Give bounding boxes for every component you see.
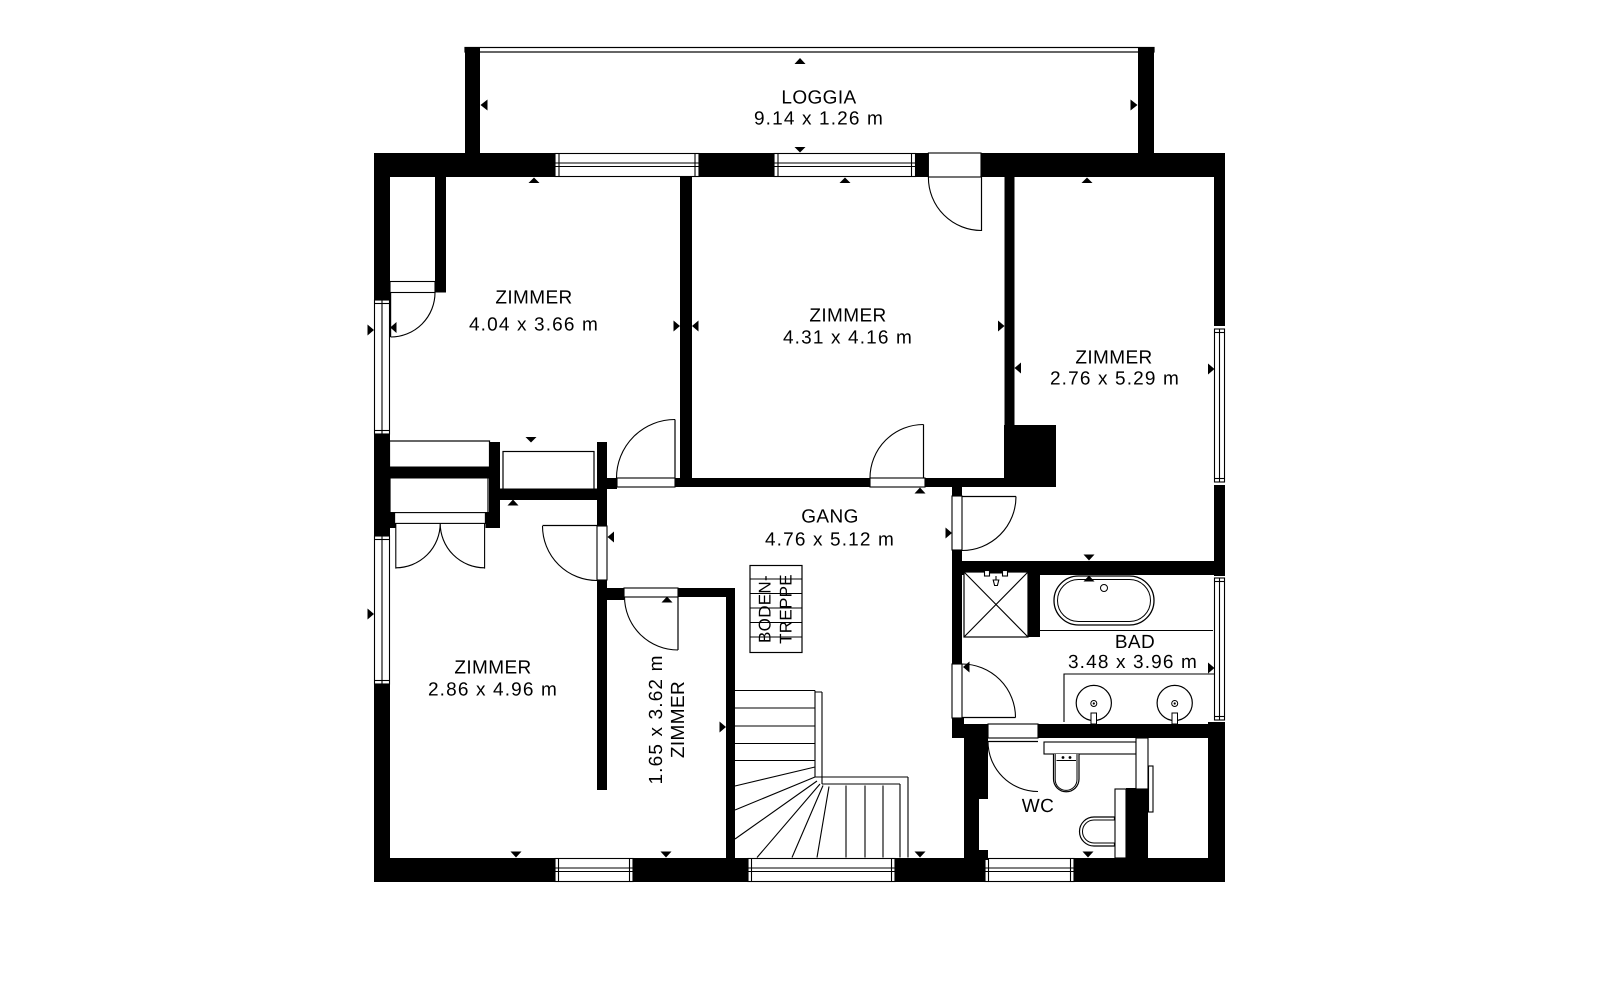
svg-text:GANG: GANG — [801, 507, 859, 528]
svg-text:4.31 x 4.16 m: 4.31 x 4.16 m — [783, 328, 913, 349]
svg-text:WC: WC — [1022, 796, 1054, 817]
svg-text:LOGGIA: LOGGIA — [781, 88, 856, 109]
svg-text:4.04 x 3.66 m: 4.04 x 3.66 m — [469, 315, 599, 336]
svg-text:2.76 x 5.29 m: 2.76 x 5.29 m — [1050, 369, 1180, 390]
svg-text:ZIMMER: ZIMMER — [454, 658, 531, 679]
svg-text:ZIMMER: ZIMMER — [495, 288, 572, 309]
svg-text:3.48 x 3.96 m: 3.48 x 3.96 m — [1068, 652, 1198, 673]
svg-text:ZIMMER: ZIMMER — [1075, 348, 1152, 369]
svg-text:9.14 x 1.26 m: 9.14 x 1.26 m — [754, 109, 884, 130]
svg-text:2.86 x 4.96 m: 2.86 x 4.96 m — [428, 680, 558, 701]
svg-text:BAD: BAD — [1115, 632, 1155, 653]
svg-text:ZIMMER: ZIMMER — [809, 306, 886, 327]
svg-text:4.76 x 5.12 m: 4.76 x 5.12 m — [765, 530, 895, 551]
